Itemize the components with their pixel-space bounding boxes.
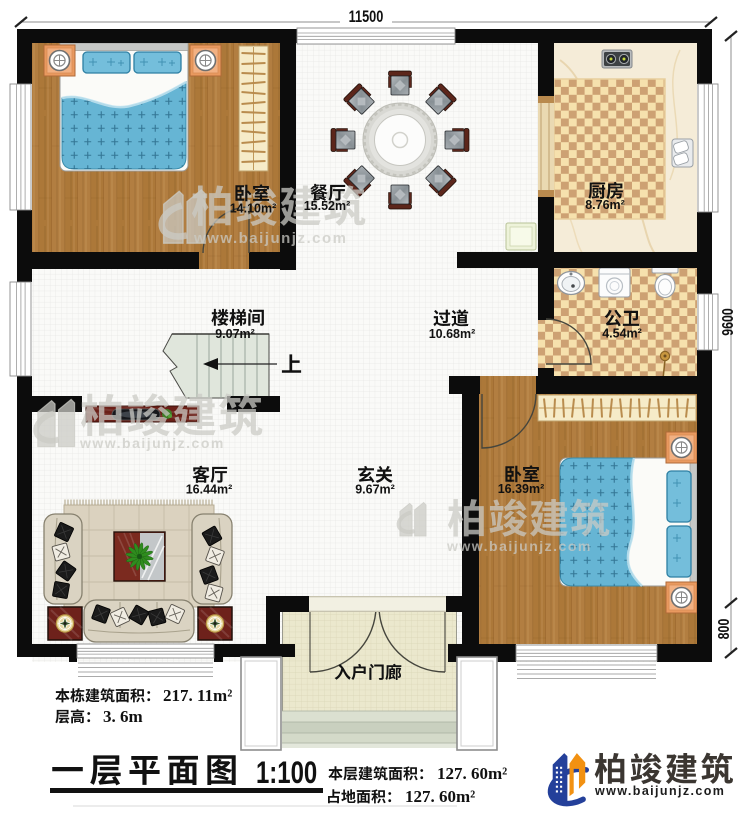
svg-text:www.baijunjz.com: www.baijunjz.com — [594, 784, 725, 798]
svg-text:15.52m²: 15.52m² — [304, 199, 351, 213]
svg-text:9.67m²: 9.67m² — [355, 483, 395, 497]
svg-text:11500: 11500 — [349, 7, 384, 26]
svg-text:9600: 9600 — [719, 308, 737, 336]
svg-text:4.54m²: 4.54m² — [602, 327, 642, 341]
svg-text:9.07m²: 9.07m² — [215, 327, 255, 341]
svg-text:14.10m²: 14.10m² — [230, 202, 277, 216]
svg-text:217. 11m²: 217. 11m² — [163, 686, 232, 705]
svg-text:8.76m²: 8.76m² — [585, 198, 625, 212]
svg-text:16.44m²: 16.44m² — [186, 483, 233, 497]
svg-text:127. 60m²: 127. 60m² — [437, 764, 507, 783]
svg-text:16.39m²: 16.39m² — [498, 482, 545, 496]
svg-text:127. 60m²: 127. 60m² — [405, 787, 475, 806]
svg-text:3. 6m: 3. 6m — [103, 707, 143, 726]
svg-text:10.68m²: 10.68m² — [429, 327, 476, 341]
svg-text:800: 800 — [715, 618, 733, 639]
svg-text:www.baijunjz.com: www.baijunjz.com — [79, 435, 225, 451]
svg-text:www.baijunjz.com: www.baijunjz.com — [446, 538, 592, 554]
svg-text:www.baijunjz.com: www.baijunjz.com — [193, 230, 347, 247]
svg-text:1:100: 1:100 — [256, 755, 317, 790]
